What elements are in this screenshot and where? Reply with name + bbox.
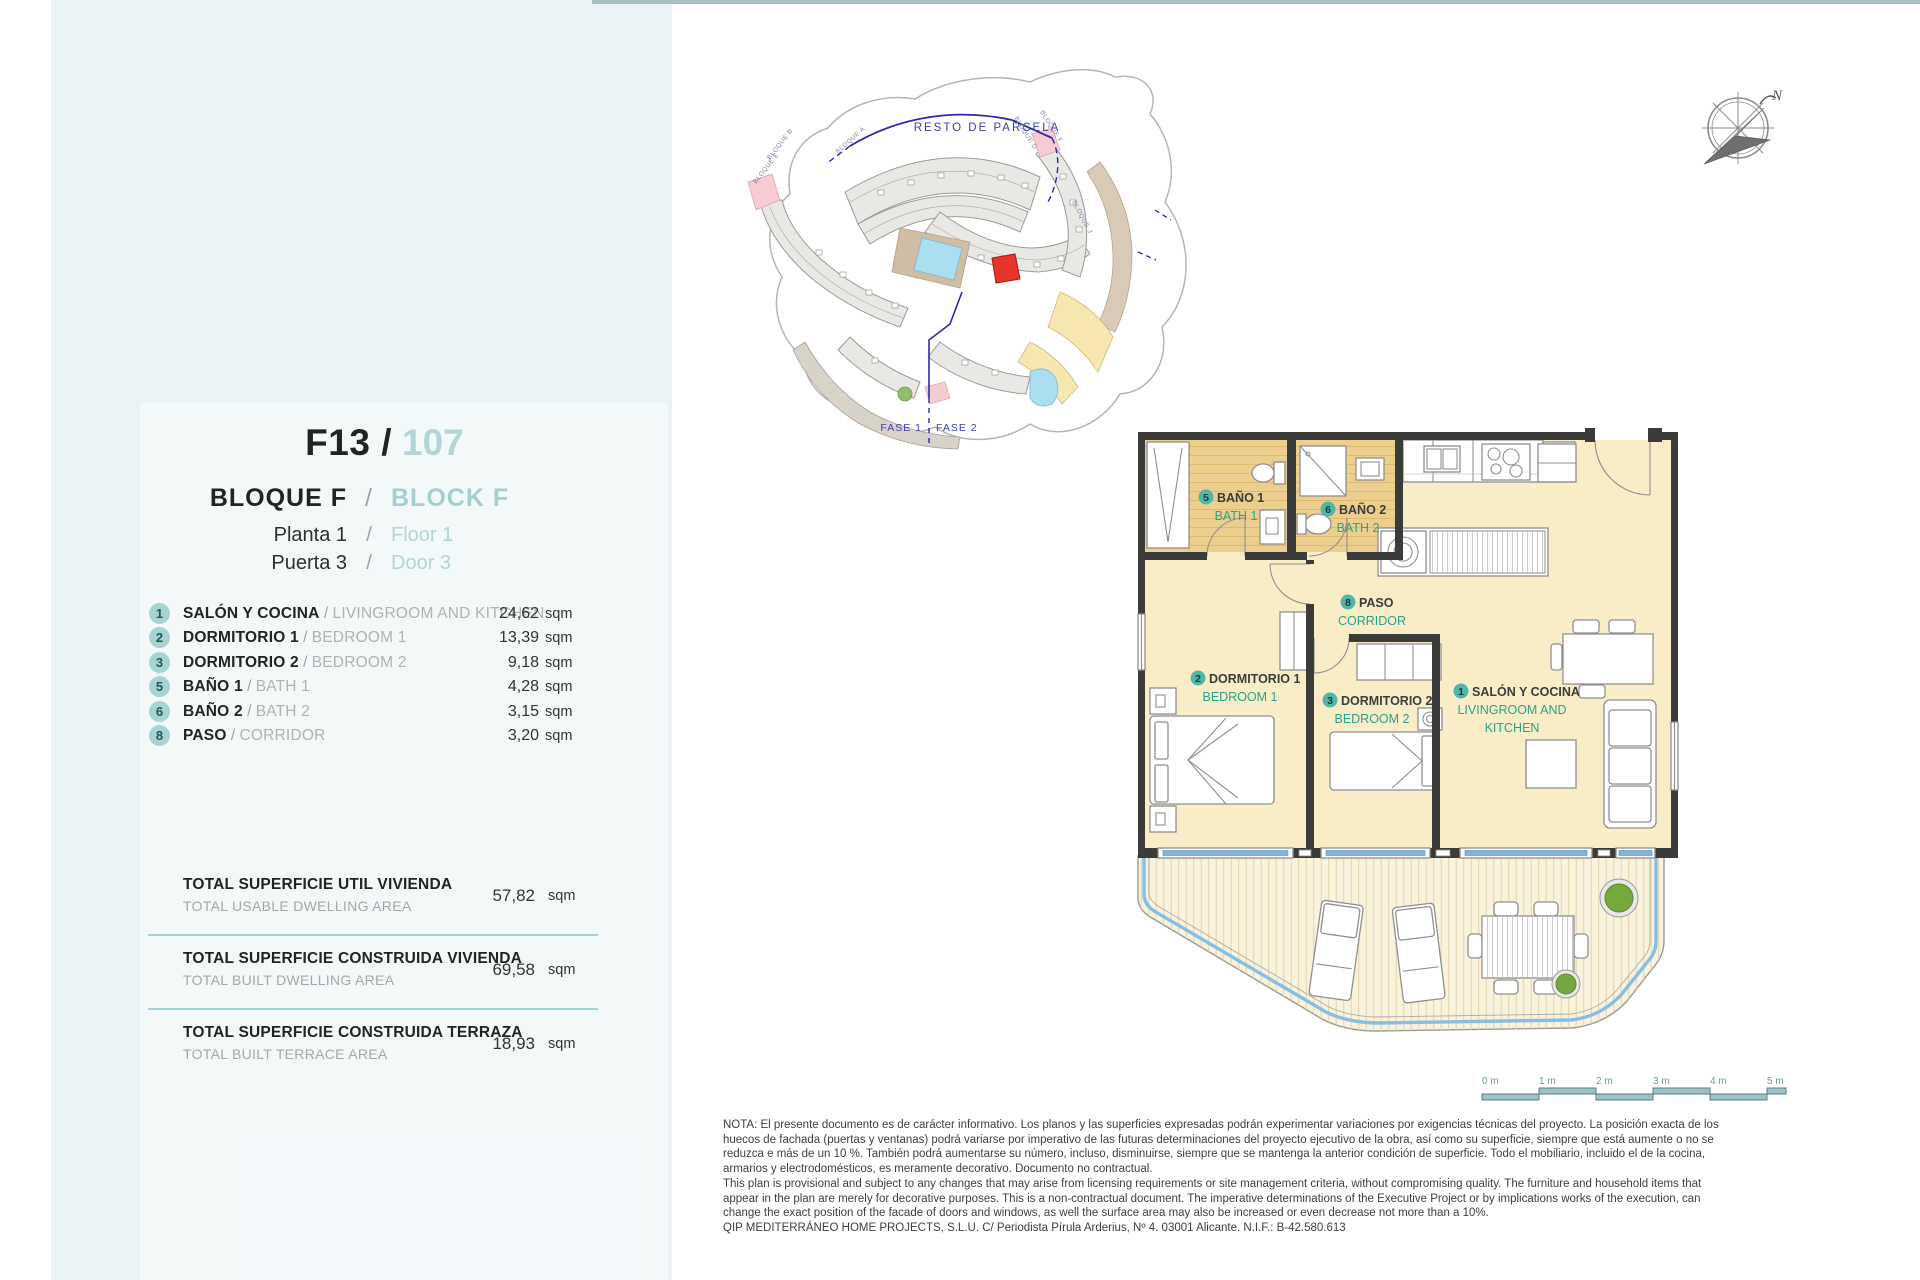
door-separator: / bbox=[347, 552, 391, 575]
svg-text:DORMITORIO 2: DORMITORIO 2 bbox=[1341, 694, 1432, 708]
svg-text:3: 3 bbox=[1327, 695, 1333, 707]
room-name-es: SALÓN Y COCINA bbox=[183, 605, 320, 622]
room-area-unit: sqm bbox=[545, 679, 572, 695]
room-names: DORMITORIO 2 / BEDROOM 2 bbox=[183, 654, 407, 672]
resto-de-parcela-label: RESTO DE PARCELA bbox=[914, 122, 1061, 134]
room-area-value: 3,20 bbox=[470, 727, 539, 745]
svg-text:8: 8 bbox=[1345, 597, 1351, 609]
room-name-en: BEDROOM 1 bbox=[312, 629, 407, 646]
room-number-badge: 5 bbox=[149, 676, 170, 697]
room-number-badge: 1 bbox=[149, 603, 170, 624]
svg-text:BATH 1: BATH 1 bbox=[1215, 509, 1258, 523]
room-area-unit: sqm bbox=[545, 728, 572, 744]
door-label-en: Door 3 bbox=[391, 552, 451, 575]
legal-note-line: appear in the plan are merely for decora… bbox=[723, 1192, 1823, 1207]
room-name-es: DORMITORIO 1 bbox=[183, 629, 299, 646]
room-name-en: BATH 2 bbox=[256, 703, 310, 720]
svg-text:DORMITORIO 1: DORMITORIO 1 bbox=[1209, 672, 1300, 686]
svg-text:LIVINGROOM AND: LIVINGROOM AND bbox=[1457, 703, 1566, 717]
svg-text:BEDROOM 1: BEDROOM 1 bbox=[1202, 690, 1277, 704]
room-area-value: 13,39 bbox=[470, 629, 539, 647]
block-row: BLOQUE F / BLOCK F bbox=[140, 484, 668, 513]
svg-text:CORRIDOR: CORRIDOR bbox=[1338, 614, 1406, 628]
legal-note: NOTA: El presente documento es de caráct… bbox=[723, 1118, 1823, 1236]
total-block: TOTAL SUPERFICIE CONSTRUIDA VIVIENDATOTA… bbox=[148, 934, 598, 1008]
door-label-es: Puerta 3 bbox=[140, 552, 347, 575]
room-name-en: CORRIDOR bbox=[240, 727, 326, 744]
potted-plant bbox=[1600, 879, 1638, 917]
legal-note-line: This plan is provisional and subject to … bbox=[723, 1177, 1823, 1192]
room-area-unit: sqm bbox=[545, 606, 572, 622]
room-list-row: 2DORMITORIO 1 / BEDROOM 113,39sqm bbox=[140, 627, 668, 651]
compass-icon: N bbox=[1688, 70, 1798, 175]
total-title-en: TOTAL USABLE DWELLING AREA bbox=[183, 898, 598, 914]
room-area-value: 9,18 bbox=[470, 654, 539, 672]
room-list-row: 8PASO / CORRIDOR3,20sqm bbox=[140, 725, 668, 749]
room-name-es: DORMITORIO 2 bbox=[183, 654, 299, 671]
top-accent-strip bbox=[592, 0, 1920, 4]
scale-1m: 1 m bbox=[1539, 1076, 1556, 1087]
svg-text:BAÑO 2: BAÑO 2 bbox=[1339, 502, 1386, 517]
room-list-row: 5BAÑO 1 / BATH 14,28sqm bbox=[140, 676, 668, 700]
svg-text:SALÓN Y COCINA: SALÓN Y COCINA bbox=[1472, 684, 1580, 699]
site-plan: RESTO DE PARCELA FASE 1 FASE 2 BLOQUE B … bbox=[700, 42, 1190, 462]
room-list-row: 6BAÑO 2 / BATH 23,15sqm bbox=[140, 701, 668, 725]
terrace bbox=[1138, 856, 1664, 1031]
room-name-separator: / bbox=[299, 654, 312, 671]
total-title-en: TOTAL BUILT DWELLING AREA bbox=[183, 972, 598, 988]
room-number-badge: 2 bbox=[149, 627, 170, 648]
floor-label-en: Floor 1 bbox=[391, 524, 453, 547]
terrace-window-bedroom2 bbox=[1321, 848, 1430, 858]
fase2-label: FASE 2 bbox=[936, 422, 978, 434]
room-names: BAÑO 1 / BATH 1 bbox=[183, 678, 310, 696]
legal-note-line: QIP MEDITERRÁNEO HOME PROJECTS, S.L.U. C… bbox=[723, 1221, 1823, 1236]
total-value: 57,82 bbox=[470, 886, 535, 906]
room-name-separator: / bbox=[320, 605, 333, 622]
scale-bar: 0 m 1 m 2 m 3 m 4 m 5 m bbox=[1478, 1072, 1808, 1112]
legal-note-line: armarios y electrodomésticos, es meramen… bbox=[723, 1162, 1823, 1177]
room-number-badge: 6 bbox=[149, 701, 170, 722]
room-names: DORMITORIO 1 / BEDROOM 1 bbox=[183, 629, 407, 647]
room-area-unit: sqm bbox=[545, 655, 572, 671]
legal-note-line: reduzca e más de un 10 %. También podrá … bbox=[723, 1147, 1823, 1162]
compass-north-label: N bbox=[1771, 88, 1783, 104]
total-title-es: TOTAL SUPERFICIE CONSTRUIDA TERRAZA bbox=[183, 1024, 598, 1042]
scale-2m: 2 m bbox=[1596, 1076, 1613, 1087]
fase1-label: FASE 1 bbox=[880, 422, 922, 434]
total-title-es: TOTAL SUPERFICIE CONSTRUIDA VIVIENDA bbox=[183, 950, 598, 968]
svg-text:2: 2 bbox=[1195, 673, 1201, 685]
svg-text:BAÑO 1: BAÑO 1 bbox=[1217, 490, 1264, 505]
floor-separator: / bbox=[347, 524, 391, 547]
room-area-unit: sqm bbox=[545, 704, 572, 720]
scale-0m: 0 m bbox=[1482, 1076, 1499, 1087]
svg-text:BATH 2: BATH 2 bbox=[1337, 521, 1380, 535]
total-title-en: TOTAL BUILT TERRACE AREA bbox=[183, 1046, 598, 1062]
room-name-separator: / bbox=[227, 727, 240, 744]
room-area-value: 24,62 bbox=[470, 605, 539, 623]
block-separator: / bbox=[347, 484, 391, 513]
total-block: TOTAL SUPERFICIE UTIL VIVIENDATOTAL USAB… bbox=[148, 862, 598, 934]
room-list: 1SALÓN Y COCINA / LIVINGROOM AND KITCHEN… bbox=[140, 603, 668, 749]
svg-text:5: 5 bbox=[1203, 492, 1209, 504]
room-list-row: 1SALÓN Y COCINA / LIVINGROOM AND KITCHEN… bbox=[140, 603, 668, 627]
total-unit: sqm bbox=[548, 1036, 575, 1052]
svg-text:PASO: PASO bbox=[1359, 596, 1394, 610]
floor-plan: 5 BAÑO 1 BATH 1 6 BAÑO 2 BATH 2 8 PASO C… bbox=[1130, 424, 1690, 1072]
scale-4m: 4 m bbox=[1710, 1076, 1727, 1087]
block-label-es: BLOQUE F bbox=[140, 484, 347, 513]
room-list-row: 3DORMITORIO 2 / BEDROOM 29,18sqm bbox=[140, 652, 668, 676]
room-number-badge: 8 bbox=[149, 725, 170, 746]
info-panel: F13 / 107 BLOQUE F / BLOCK F Planta 1 / … bbox=[140, 402, 668, 1280]
floor-row: Planta 1 / Floor 1 bbox=[140, 524, 668, 547]
block-label-en: BLOCK F bbox=[391, 484, 509, 513]
potted-plant-small bbox=[1552, 970, 1580, 998]
total-block: TOTAL SUPERFICIE CONSTRUIDA TERRAZATOTAL… bbox=[148, 1008, 598, 1082]
room-name-en: BEDROOM 2 bbox=[312, 654, 407, 671]
total-value: 18,93 bbox=[470, 1034, 535, 1054]
room-names: BAÑO 2 / BATH 2 bbox=[183, 703, 310, 721]
room-name-separator: / bbox=[299, 629, 312, 646]
total-unit: sqm bbox=[548, 888, 575, 904]
room-area-value: 4,28 bbox=[470, 678, 539, 696]
door-row: Puerta 3 / Door 3 bbox=[140, 552, 668, 575]
unit-code: F13 / bbox=[140, 422, 392, 464]
total-unit: sqm bbox=[548, 962, 575, 978]
svg-text:6: 6 bbox=[1325, 504, 1331, 516]
room-name-en: BATH 1 bbox=[256, 678, 310, 695]
unit-title: F13 / 107 bbox=[140, 422, 668, 464]
room-name-separator: / bbox=[243, 678, 256, 695]
legal-note-line: NOTA: El presente documento es de caráct… bbox=[723, 1118, 1823, 1133]
room-number-badge: 3 bbox=[149, 652, 170, 673]
room-area-unit: sqm bbox=[545, 630, 572, 646]
svg-text:BEDROOM 2: BEDROOM 2 bbox=[1334, 712, 1409, 726]
kitchen-island bbox=[1378, 528, 1548, 576]
room-name-es: BAÑO 2 bbox=[183, 703, 243, 720]
room-name-es: BAÑO 1 bbox=[183, 678, 243, 695]
scale-5m: 5 m bbox=[1767, 1076, 1784, 1087]
room-name-es: PASO bbox=[183, 727, 227, 744]
highlighted-unit bbox=[992, 254, 1020, 283]
room-name-separator: / bbox=[243, 703, 256, 720]
legal-note-line: change the exact position of the facade … bbox=[723, 1206, 1823, 1221]
legal-note-line: huecos de fachada (puertas y ventanas) p… bbox=[723, 1133, 1823, 1148]
brochure-page: F13 / 107 BLOQUE F / BLOCK F Planta 1 / … bbox=[0, 0, 1920, 1280]
room-names: PASO / CORRIDOR bbox=[183, 727, 326, 745]
terrace-window-living-2 bbox=[1616, 848, 1655, 858]
unit-number: 107 bbox=[402, 422, 464, 464]
terrace-window-bedroom1 bbox=[1158, 848, 1293, 858]
site-tree bbox=[898, 387, 912, 401]
floor-label-es: Planta 1 bbox=[140, 524, 347, 547]
terrace-window-living bbox=[1460, 848, 1592, 858]
total-title-es: TOTAL SUPERFICIE UTIL VIVIENDA bbox=[183, 876, 598, 894]
scale-3m: 3 m bbox=[1653, 1076, 1670, 1087]
totals-list: TOTAL SUPERFICIE UTIL VIVIENDATOTAL USAB… bbox=[148, 862, 598, 1082]
svg-text:KITCHEN: KITCHEN bbox=[1485, 721, 1540, 735]
total-value: 69,58 bbox=[470, 960, 535, 980]
svg-text:1: 1 bbox=[1458, 686, 1464, 698]
room-area-value: 3,15 bbox=[470, 703, 539, 721]
